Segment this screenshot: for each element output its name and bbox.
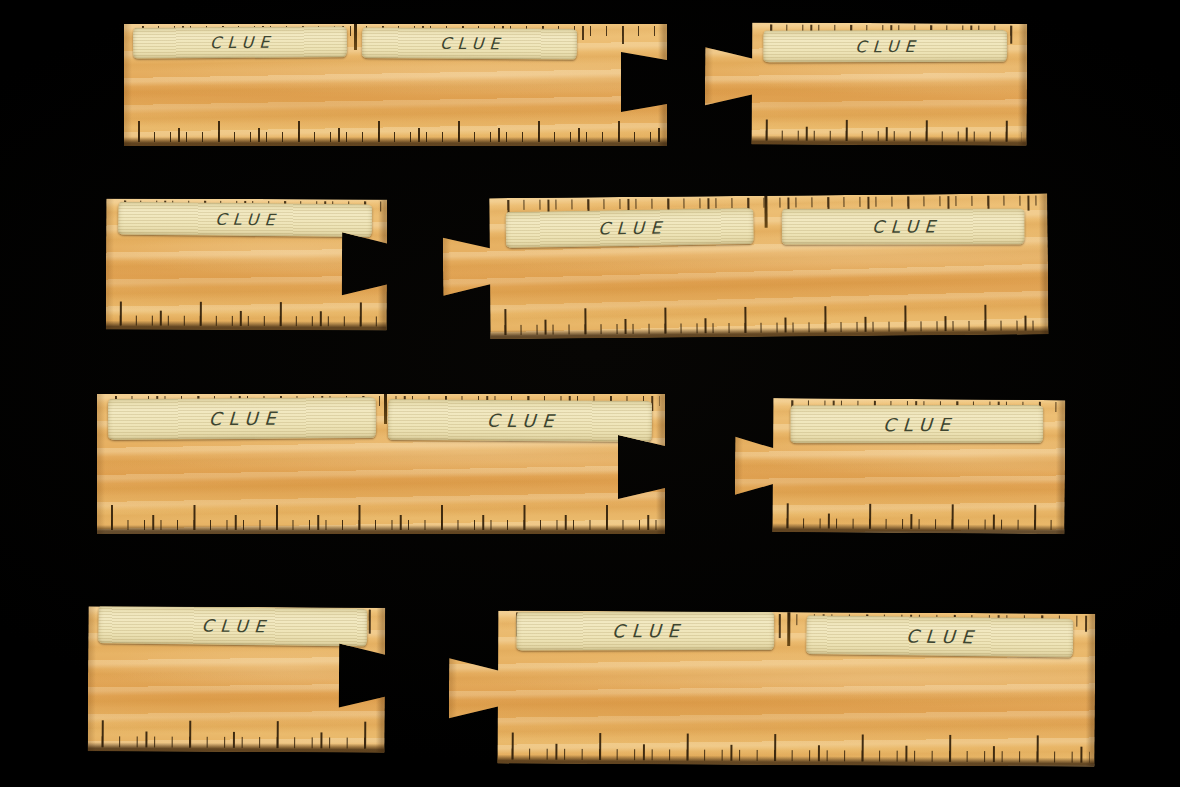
ruler-piece-4-left: CLUE [88,606,386,753]
ruler-division-tick [764,196,767,228]
tape-label: CLUE [108,397,376,440]
clue-label: CLUE [876,414,958,435]
ruler-piece-3-left: CLUE CLUE [97,394,665,534]
clue-label: CLUE [605,620,686,641]
ruler-piece-1-left: CLUE CLUE [124,24,667,146]
tape-label: CLUE [505,208,754,248]
ruler-ticks-bottom [110,302,382,327]
tape-label: CLUE [362,27,577,60]
photo-background: CLUE CLUE CLUE CLUE CLUE CLUE [0,0,1180,787]
ruler-piece-2-right: CLUE CLUE [442,193,1048,339]
ruler-piece-1-right: CLUE [705,22,1028,146]
ruler-ticks-bottom [777,503,1060,530]
ruler-division-tick [354,24,357,50]
ruler-ticks-bottom [756,119,1022,141]
clue-label: CLUE [433,34,506,53]
ruler-ticks-bottom [92,720,380,749]
ruler-piece-2-left: CLUE [106,199,387,331]
tape-label: CLUE [806,615,1073,657]
ruler-division-tick [787,612,790,646]
clue-label: CLUE [865,217,942,237]
ruler-ticks-bottom [494,304,1043,335]
tape-label: CLUE [790,405,1043,443]
clue-label: CLUE [899,625,981,647]
clue-label: CLUE [479,410,561,432]
clue-label: CLUE [204,33,276,53]
ruler-division-tick [384,394,387,424]
tape-label: CLUE [516,611,774,651]
tape-label: CLUE [782,208,1025,244]
ruler-piece-4-right: CLUE CLUE [449,610,1096,766]
tape-label: CLUE [133,26,347,59]
clue-label: CLUE [194,616,271,637]
ruler-piece-3-right: CLUE [735,398,1066,534]
tape-label: CLUE [98,605,367,646]
tape-label: CLUE [763,30,1007,63]
clue-label: CLUE [591,217,668,238]
tape-label: CLUE [388,399,652,442]
ruler-ticks-bottom [101,505,660,530]
clue-label: CLUE [209,210,282,230]
tape-label: CLUE [118,202,372,238]
ruler-ticks-bottom [502,733,1090,763]
ruler-ticks-bottom [128,121,662,142]
clue-label: CLUE [849,37,921,56]
clue-label: CLUE [201,408,282,430]
